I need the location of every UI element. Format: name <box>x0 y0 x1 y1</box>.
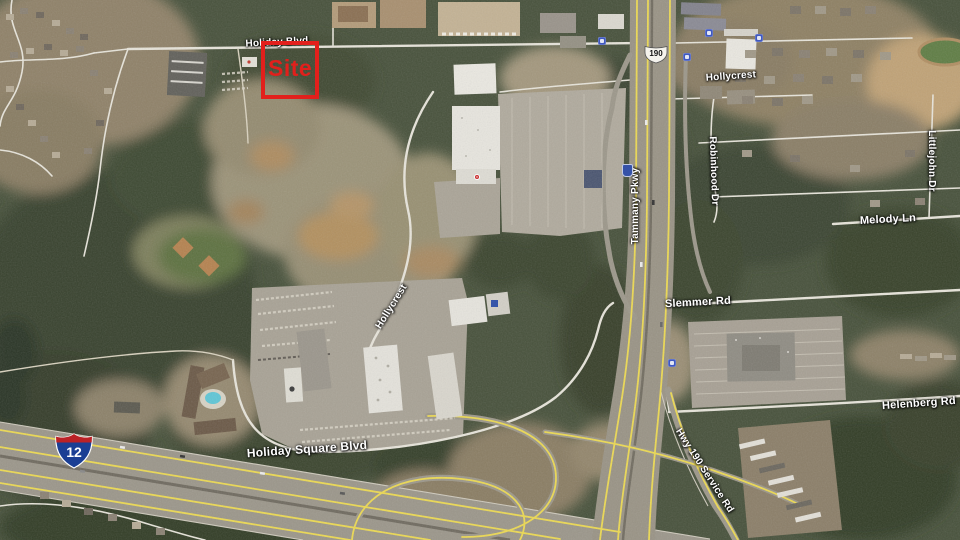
image-grain <box>0 0 960 540</box>
state-route-marker-icon <box>622 164 633 177</box>
label-littlejohn-dr: Littlejohn Dr <box>926 130 936 191</box>
poi-icon <box>683 53 691 61</box>
us-route-190-shield-icon: 190 <box>643 44 669 64</box>
poi-icon <box>668 359 676 367</box>
label-tammany-pkwy: Tammany Pkwy <box>631 168 641 245</box>
poi-icon <box>705 29 713 37</box>
map-canvas[interactable]: .mr{fill:none;stroke:#e7e4da;stroke-widt… <box>0 0 960 540</box>
site-label: Site <box>268 57 312 80</box>
interstate-12-number: 12 <box>66 445 82 459</box>
satellite-imagery: .mr{fill:none;stroke:#e7e4da;stroke-widt… <box>0 0 960 540</box>
poi-icon <box>598 37 606 45</box>
poi-icon <box>755 34 763 42</box>
interstate-12-shield-icon: 12 <box>55 433 93 469</box>
us-route-190-number: 190 <box>649 50 662 58</box>
label-robinhood-dr: Robinhood Dr <box>707 136 719 205</box>
